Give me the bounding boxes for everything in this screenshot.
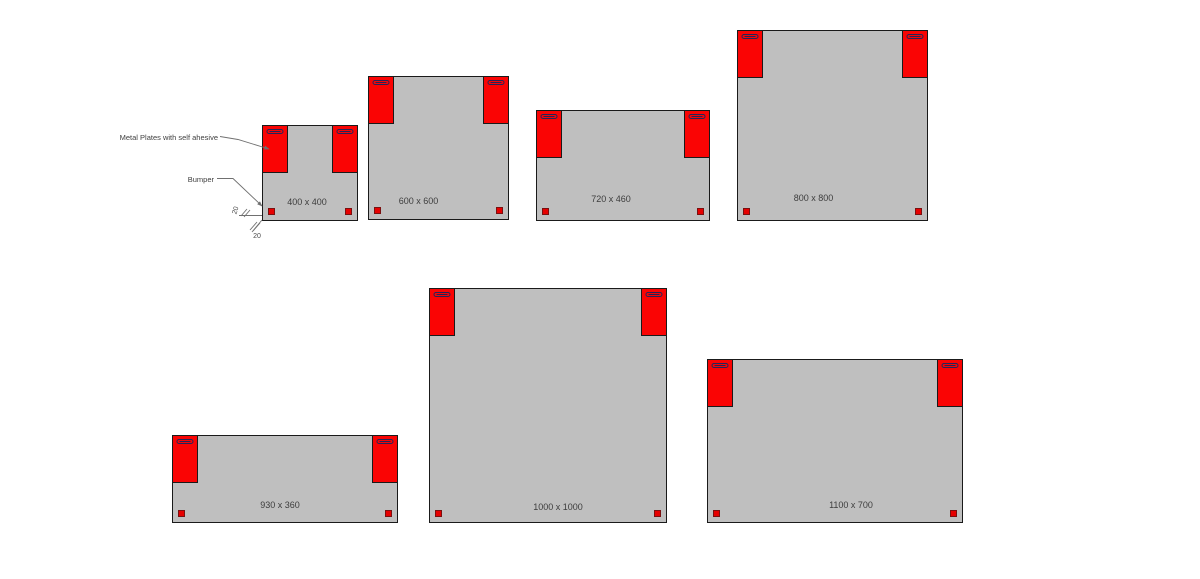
bumper-bottom-left: [178, 510, 185, 517]
panel-930x360: 930 x 360: [172, 435, 398, 523]
metal-plate-top-left: [429, 288, 455, 336]
bumper-bottom-right: [385, 510, 392, 517]
plate-slot-icon: [712, 363, 729, 368]
metal-plate-top-right: [684, 110, 710, 158]
bumper-bottom-left: [713, 510, 720, 517]
dimension-20-horizontal: 20: [250, 232, 264, 241]
bumper-bottom-left: [374, 207, 381, 214]
panel-size-label: 1000 x 1000: [533, 502, 583, 512]
metal-plate-top-right: [372, 435, 398, 483]
plate-slot-icon: [689, 114, 706, 119]
dim-extension-line: [252, 220, 262, 232]
metal-plate-top-right: [937, 359, 963, 407]
plate-slot-icon: [742, 34, 759, 39]
plate-slot-icon: [267, 129, 284, 134]
panel-1100x700: 1100 x 700: [707, 359, 963, 523]
plate-slot-icon: [177, 439, 194, 444]
bumper-leader-line: [217, 179, 262, 207]
panel-600x600: 600 x 600: [368, 76, 509, 220]
dim-tick: [253, 223, 260, 231]
plate-slot-icon: [377, 439, 394, 444]
metal-plate-top-right: [641, 288, 667, 336]
panel-size-label: 800 x 800: [794, 193, 834, 203]
plate-slot-icon: [337, 129, 354, 134]
metal-plate-top-left: [536, 110, 562, 158]
plate-slot-icon: [907, 34, 924, 39]
plate-slot-icon: [434, 292, 451, 297]
bumper-bottom-right: [915, 208, 922, 215]
bumper-bottom-left: [743, 208, 750, 215]
bumper-bottom-right: [345, 208, 352, 215]
panel-720x460: 720 x 460: [536, 110, 710, 221]
metal-plate-top-right: [483, 76, 509, 124]
dimension-20-vertical: 20: [230, 202, 243, 218]
dim-tick: [250, 222, 257, 230]
plate-slot-icon: [541, 114, 558, 119]
bumper-bottom-right: [654, 510, 661, 517]
panel-400x400: 400 x 400: [262, 125, 358, 221]
bumper-bottom-right: [697, 208, 704, 215]
panel-size-label: 400 x 400: [287, 197, 327, 207]
metal-plate-top-left: [368, 76, 394, 124]
metal-plate-top-right: [902, 30, 928, 78]
bumper-bottom-right: [496, 207, 503, 214]
metal-plate-top-left: [172, 435, 198, 483]
metal-plate-top-left: [737, 30, 763, 78]
plate-slot-icon: [646, 292, 663, 297]
metal-plate-top-right: [332, 125, 358, 173]
plate-slot-icon: [488, 80, 505, 85]
diagram-canvas: 400 x 400 600 x 600 720 x 460 800 x 800: [0, 0, 1200, 579]
panel-size-label: 600 x 600: [399, 196, 439, 206]
bumper-bottom-left: [542, 208, 549, 215]
bumper-annotation-label: Bumper: [188, 175, 214, 185]
panel-size-label: 930 x 360: [260, 500, 300, 510]
panel-size-label: 1100 x 700: [829, 500, 873, 510]
dim-tick: [241, 209, 247, 216]
plate-slot-icon: [942, 363, 959, 368]
metal-plate-top-left: [262, 125, 288, 173]
panel-size-label: 720 x 460: [591, 194, 631, 204]
plate-slot-icon: [373, 80, 390, 85]
metal-plates-annotation-label: Metal Plates with self ahesive: [120, 133, 218, 143]
bumper-bottom-right: [950, 510, 957, 517]
bumper-bottom-left: [435, 510, 442, 517]
panel-800x800: 800 x 800: [737, 30, 928, 221]
dim-tick: [244, 210, 250, 217]
panel-1000x1000: 1000 x 1000: [429, 288, 667, 523]
bumper-bottom-left: [268, 208, 275, 215]
metal-plate-top-left: [707, 359, 733, 407]
